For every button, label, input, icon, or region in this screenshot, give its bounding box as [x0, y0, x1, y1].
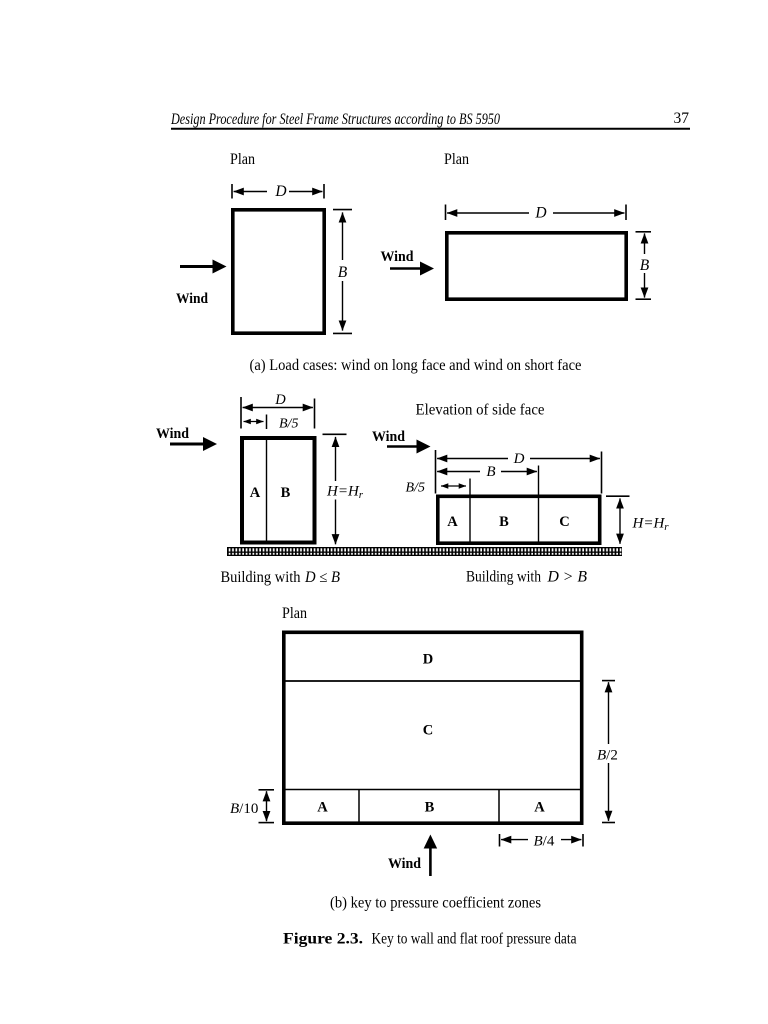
svg-text:C: C [423, 723, 433, 739]
svg-text:Plan: Plan [444, 151, 469, 168]
svg-text:A: A [534, 800, 545, 816]
svg-text:Figure 2.3.: Figure 2.3. [283, 931, 363, 948]
svg-text:Building with: Building with [221, 569, 301, 586]
svg-text:B/5: B/5 [406, 481, 425, 496]
svg-text:B: B [499, 514, 509, 530]
svg-text:B: B [281, 485, 291, 501]
svg-text:Wind: Wind [176, 291, 209, 307]
svg-text:H=Hr: H=Hr [326, 484, 364, 502]
svg-text:(a) Load cases: wind on long f: (a) Load cases: wind on long face and wi… [250, 357, 582, 374]
svg-text:A: A [250, 485, 261, 501]
svg-text:D: D [534, 205, 546, 222]
svg-text:D ≤ B: D ≤ B [304, 569, 340, 586]
svg-text:D > B: D > B [546, 569, 587, 586]
svg-text:B: B [486, 464, 495, 480]
svg-text:37: 37 [674, 110, 690, 127]
svg-text:B/2: B/2 [597, 748, 618, 764]
svg-text:Wind: Wind [156, 426, 190, 442]
svg-text:Plan: Plan [230, 151, 255, 168]
svg-text:(b) key to pressure coefficien: (b) key to pressure coefficient zones [330, 895, 541, 912]
svg-text:C: C [559, 514, 569, 530]
svg-text:D: D [274, 392, 286, 408]
svg-text:Plan: Plan [282, 605, 307, 622]
svg-text:B/4: B/4 [534, 834, 555, 850]
svg-text:D: D [423, 652, 433, 668]
svg-text:Wind: Wind [388, 856, 422, 872]
svg-text:D: D [513, 451, 525, 467]
svg-text:Wind: Wind [372, 429, 406, 445]
svg-text:Design Procedure for Steel Fra: Design Procedure for Steel Frame Structu… [170, 111, 500, 128]
svg-text:B: B [425, 800, 435, 816]
svg-text:D: D [274, 183, 286, 200]
svg-text:A: A [317, 800, 328, 816]
svg-text:Elevation of side face: Elevation of side face [416, 402, 545, 419]
svg-text:Building with: Building with [466, 569, 541, 586]
svg-text:H=Hr: H=Hr [632, 516, 670, 534]
svg-text:B: B [640, 257, 650, 274]
svg-text:B: B [338, 264, 348, 281]
svg-text:A: A [447, 514, 458, 530]
svg-text:Wind: Wind [381, 249, 415, 265]
svg-text:B/5: B/5 [279, 417, 298, 432]
svg-text:Key to wall and flat roof pres: Key to wall and flat roof pressure data [372, 931, 577, 948]
svg-text:B/10: B/10 [230, 801, 258, 817]
